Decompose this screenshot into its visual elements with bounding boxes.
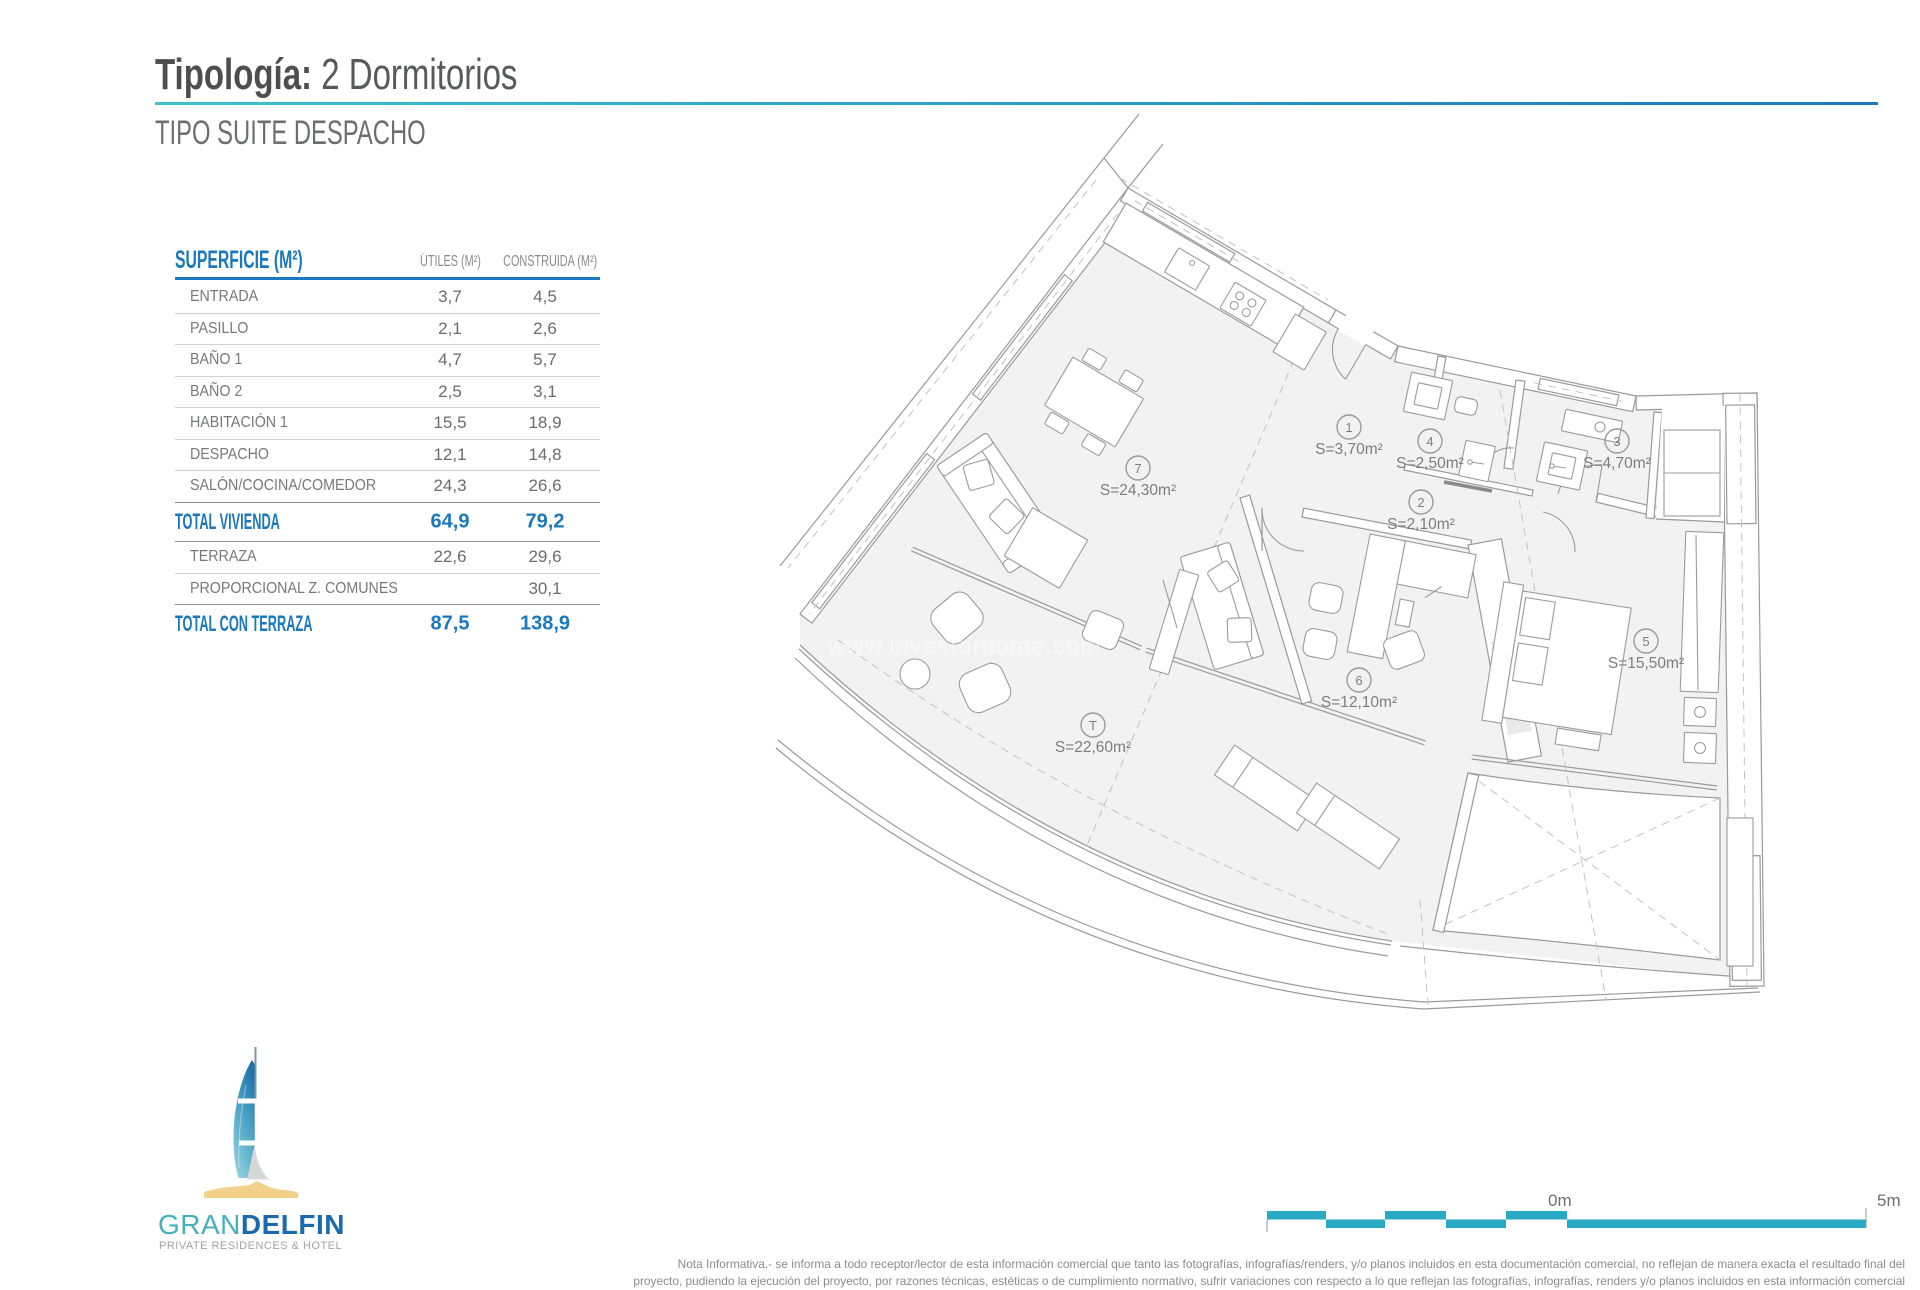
svg-text:2: 2 [1417, 495, 1424, 510]
svg-text:T: T [1089, 718, 1097, 733]
svg-text:www.investorhome.com: www.investorhome.com [827, 633, 1101, 660]
svg-text:4: 4 [1426, 434, 1433, 449]
svg-text:S=2,10m²: S=2,10m² [1387, 516, 1455, 533]
svg-text:0m: 0m [1548, 1191, 1572, 1210]
svg-text:5m: 5m [1877, 1191, 1901, 1210]
svg-text:5: 5 [1642, 634, 1649, 649]
svg-text:3: 3 [1613, 434, 1620, 449]
svg-text:S=4,70m²: S=4,70m² [1583, 455, 1651, 472]
svg-text:S=15,50m²: S=15,50m² [1608, 655, 1684, 672]
svg-text:PRIVATE RESIDENCES & HOTEL: PRIVATE RESIDENCES & HOTEL [159, 1240, 342, 1252]
svg-text:S=2,50m²: S=2,50m² [1396, 455, 1464, 472]
svg-text:7: 7 [1134, 461, 1141, 476]
svg-text:S=24,30m²: S=24,30m² [1100, 482, 1176, 499]
svg-text:S=12,10m²: S=12,10m² [1321, 694, 1397, 711]
svg-text:1: 1 [1345, 420, 1352, 435]
svg-text:S=22,60m²: S=22,60m² [1055, 739, 1131, 756]
svg-text:GRANDELFIN: GRANDELFIN [158, 1209, 345, 1240]
svg-text:S=3,70m²: S=3,70m² [1315, 441, 1383, 458]
svg-text:6: 6 [1355, 673, 1362, 688]
